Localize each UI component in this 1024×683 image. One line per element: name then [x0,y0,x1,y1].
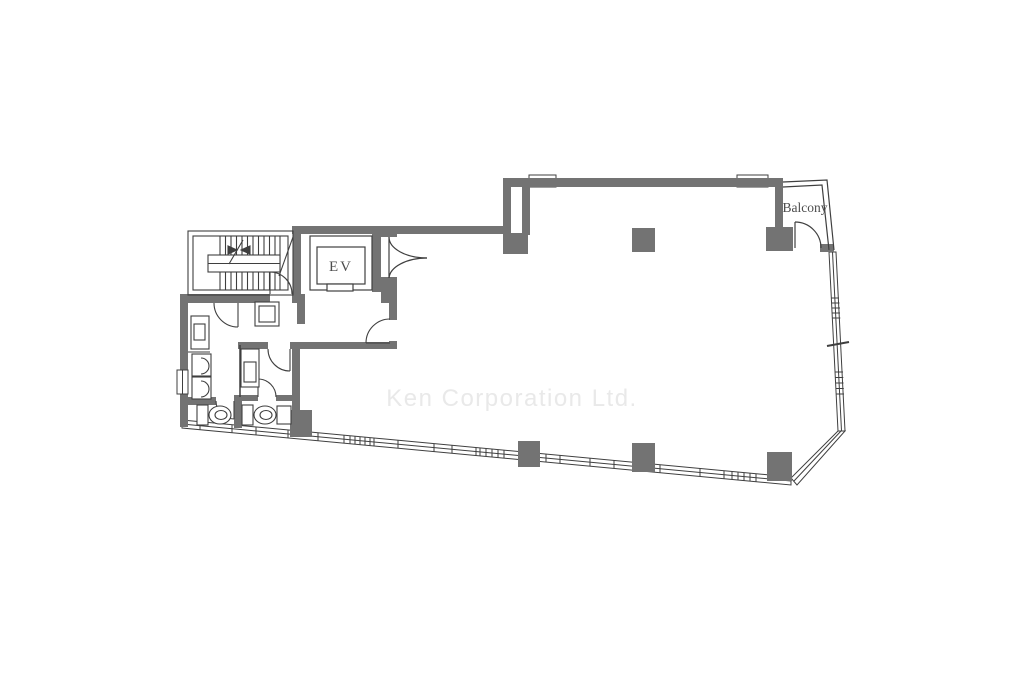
left-wall-window [177,370,188,394]
column [632,443,655,472]
column [503,233,528,254]
stair-door [270,272,292,294]
pipe-shaft [255,302,279,326]
stall-cabinet [277,406,291,424]
column [766,227,793,251]
middle-room-door [268,349,290,371]
floor-plan-page: Ken Corporation Ltd. [0,0,1024,683]
column [290,410,312,437]
balcony-label: Balcony [783,200,828,215]
elevator-hall-double-door [389,237,427,278]
staircase [188,231,293,295]
elevator-sill [327,284,353,291]
toilet [242,405,276,425]
elevator-label: EV [329,259,353,275]
exterior-window-bands [182,175,849,485]
toilet [197,405,231,425]
counter-unit [241,349,259,387]
floor-plan-drawing: Ken Corporation Ltd. [0,0,1024,683]
watermark-text: Ken Corporation Ltd. [386,385,637,412]
washroom-door [214,303,238,327]
wash-basin [192,377,211,399]
hall-to-office-door [366,319,390,343]
right-stall-door [258,379,276,397]
stair-break-line [279,237,293,276]
column [767,452,792,481]
diagonal-window-band [791,431,845,485]
column [518,441,540,467]
elevator [310,236,427,291]
wash-basin [192,354,211,376]
column [632,228,655,252]
slop-sink [191,316,209,349]
balcony-door [795,222,821,248]
